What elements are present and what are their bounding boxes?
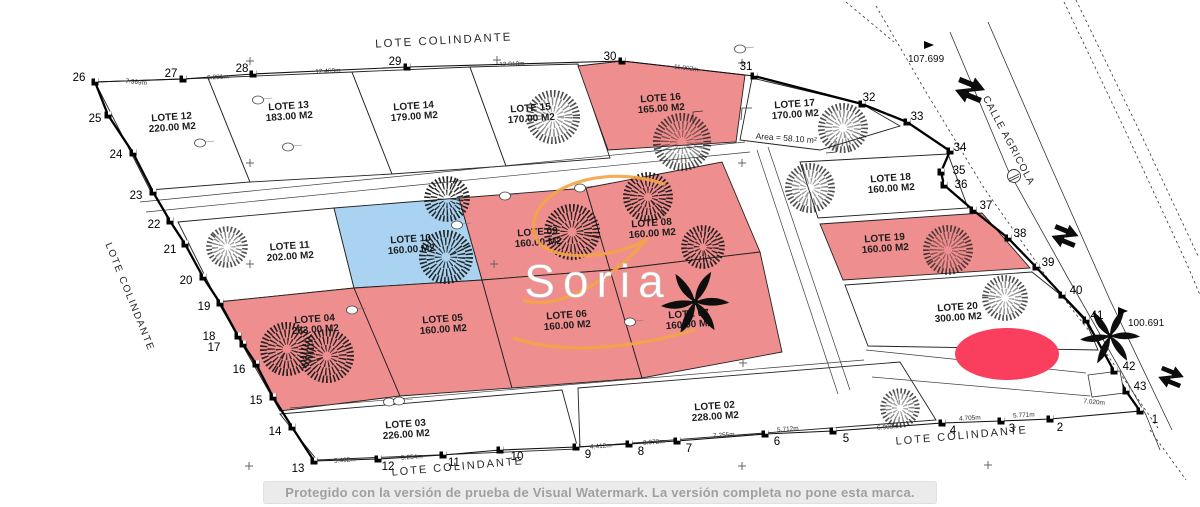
boundary-point-number: 2	[1057, 422, 1063, 434]
boundary-marker-inner	[443, 452, 446, 455]
boundary-marker-inner	[378, 456, 381, 459]
boundary-point-number: 31	[740, 61, 753, 73]
survey-circle-icon	[452, 221, 463, 229]
boundary-marker-inner	[1140, 408, 1143, 411]
boundary-point-22: 22	[148, 218, 174, 232]
boundary-point-number: 16	[233, 364, 246, 376]
boundary-point-40: 40	[1059, 285, 1083, 299]
boundary-point-13: 13	[292, 458, 318, 476]
boundary-point-number: 17	[208, 342, 221, 354]
lot-label: LOTE 06160.00 M2	[543, 308, 592, 333]
boundary-marker-inner	[153, 189, 156, 192]
boundary-point-23: 23	[130, 189, 157, 203]
boundary-marker-inner	[203, 274, 206, 277]
boundary-point-number: 30	[604, 51, 617, 63]
boundary-marker-inner	[407, 64, 410, 67]
road-direction-arrows-icon	[1156, 362, 1187, 392]
grid-cross-icon	[738, 159, 746, 167]
survey-circle-icon	[384, 398, 395, 406]
boundary-point-number: 9	[585, 449, 591, 461]
survey-circle-icon	[625, 318, 636, 326]
benchmark-flag-icon	[924, 41, 934, 54]
palm-center	[692, 299, 698, 305]
logo-pink-dot	[955, 328, 1059, 380]
street-line	[1064, 2, 1200, 295]
edge-length-label: 12.469m	[315, 67, 341, 75]
boundary-marker-inner	[944, 182, 947, 185]
boundary-point-number: 38	[1014, 228, 1027, 240]
boundary-point-number: 22	[148, 219, 161, 231]
lot-lote-11: LOTE 11202.00 M2	[178, 208, 354, 302]
survey-circle-icon	[735, 45, 746, 53]
boundary-marker-inner	[238, 333, 241, 336]
boundary-point-number: 7	[686, 443, 692, 455]
edge-length-label: 5.254m	[401, 453, 423, 461]
survey-tick	[405, 399, 414, 400]
lot-label: LOTE 05160.00 M2	[419, 312, 468, 337]
survey-circle-icon	[195, 139, 206, 147]
street-line	[846, 2, 894, 42]
boundary-point-number: 41	[1091, 310, 1104, 322]
survey-circle-icon	[500, 192, 511, 200]
boundary-marker-inner	[941, 169, 944, 172]
lot-label: LOTE 17170.00 M2	[771, 97, 820, 122]
adjacent-lot-label-1: LOTE COLINDANTE	[103, 241, 157, 353]
palm-center	[1107, 333, 1113, 339]
boundary-marker-inner	[1008, 235, 1011, 238]
plan-canvas: LOTE 12220.00 M2LOTE 13183.00 M2LOTE 141…	[0, 0, 1200, 507]
boundary-marker-inner	[765, 431, 768, 434]
boundary-marker-inner	[314, 458, 317, 461]
boundary-point-25: 25	[89, 112, 112, 126]
boundary-point-number: 13	[292, 463, 305, 475]
boundary-point-number: 36	[955, 179, 968, 191]
grid-cross-icon	[738, 462, 746, 470]
lot-label: LOTE 02228.00 M2	[691, 399, 740, 424]
boundary-marker-inner	[500, 447, 503, 450]
lot-label: LOTE 11202.00 M2	[266, 239, 315, 264]
edge-length-label: 5.771m	[1013, 411, 1035, 419]
boundary-marker-inner	[1050, 416, 1053, 419]
street-line	[1076, 0, 1199, 258]
boundary-point-18: 18	[203, 331, 242, 343]
boundary-marker-inner	[170, 218, 173, 221]
lot-label: LOTE 19160.00 M2	[861, 231, 910, 256]
adjacent-lot-label-0: LOTE COLINDANTE	[375, 31, 513, 50]
edge-length-label: 7.255m	[713, 431, 735, 439]
survey-circle-icon	[347, 306, 358, 314]
survey-tick	[746, 47, 755, 48]
site-plan: LOTE 12220.00 M2LOTE 13183.00 M2LOTE 141…	[0, 0, 1200, 507]
boundary-point-14: 14	[269, 424, 296, 439]
boundary-point-41: 41	[1083, 310, 1104, 324]
gate-rectangle	[1088, 371, 1124, 397]
benchmark-1: 100.691	[1118, 307, 1165, 329]
boundary-marker-inner	[185, 241, 188, 244]
boundary-point-number: 34	[954, 142, 967, 154]
boundary-marker-inner	[576, 444, 579, 447]
lot-label: LOTE 03226.00 M2	[382, 417, 431, 442]
edge-length-label: 4.412m	[590, 442, 612, 450]
edge-length-label: 12.910m	[499, 61, 525, 69]
lot-label: LOTE 12220.00 M2	[148, 110, 197, 135]
survey-circle-icon	[394, 397, 405, 405]
boundary-point-number: 23	[130, 190, 143, 202]
boundary-marker-inner	[833, 428, 836, 431]
edge-length-label: 6.909m	[877, 423, 899, 431]
boundary-marker-inner	[1062, 292, 1065, 295]
boundary-point-number: 43	[1134, 381, 1147, 393]
boundary-point-number: 20	[180, 275, 193, 287]
boundary-point-43: 43	[1123, 381, 1147, 395]
boundary-marker-inner	[1036, 264, 1039, 267]
boundary-point-number: 29	[389, 56, 402, 68]
boundary-marker-inner	[1126, 388, 1129, 391]
boundary-point-number: 40	[1070, 285, 1083, 297]
boundary-point-number: 32	[863, 92, 876, 104]
boundary-point-number: 21	[164, 244, 177, 256]
boundary-point-20: 20	[180, 274, 207, 288]
boundary-marker-inner	[622, 58, 625, 61]
watermark-protect-bar: Protegido con la versión de prueba de Vi…	[263, 481, 937, 504]
edge-length-label: 4.705m	[959, 414, 981, 422]
boundary-point-34: 34	[947, 142, 967, 155]
boundary-point-24: 24	[110, 149, 137, 161]
watermark-protect-text: Protegido con la versión de prueba de Vi…	[285, 485, 914, 500]
boundary-point-number: 42	[1123, 361, 1136, 373]
boundary-marker-inner	[1001, 418, 1004, 421]
boundary-marker-inner	[108, 112, 111, 115]
boundary-point-19: 19	[198, 300, 224, 314]
boundary-point-1: 1	[1137, 408, 1159, 427]
grid-cross-icon	[984, 461, 992, 469]
survey-circle-icon	[253, 96, 264, 104]
boundary-point-29: 29	[389, 56, 411, 71]
boundary-point-number: 28	[236, 63, 249, 75]
survey-point-icon	[735, 45, 755, 53]
boundary-point-number: 15	[250, 395, 263, 407]
boundary-point-15: 15	[250, 394, 277, 408]
boundary-marker-inner	[1114, 368, 1117, 371]
grid-cross-icon	[245, 462, 253, 470]
boundary-point-number: 18	[203, 331, 216, 343]
boundary-point-number: 19	[198, 301, 211, 313]
boundary-point-number: 8	[638, 446, 644, 458]
lot-label: LOTE 13183.00 M2	[265, 99, 314, 124]
boundary-point-37: 37	[970, 200, 993, 214]
boundary-marker-inner	[1086, 317, 1089, 320]
survey-circle-icon	[283, 143, 294, 151]
boundary-marker-inner	[754, 73, 757, 76]
benchmark-elevation: 100.691	[1128, 318, 1165, 329]
boundary-point-number: 5	[843, 433, 849, 445]
boundary-marker-inner	[942, 420, 945, 423]
boundary-point-39: 39	[1033, 257, 1055, 271]
boundary-point-number: 14	[269, 426, 282, 438]
boundary-point-number: 35	[953, 165, 966, 177]
boundary-marker-inner	[973, 207, 976, 210]
survey-circle-icon	[575, 184, 586, 192]
benchmark-0: 107.699	[908, 41, 945, 65]
boundary-marker-inner	[292, 424, 295, 427]
boundary-point-30: 30	[604, 51, 626, 65]
lot-label: LOTE 18160.00 M2	[867, 171, 916, 196]
boundary-point-38: 38	[1005, 228, 1027, 242]
lot-label: LOTE 14179.00 M2	[390, 99, 439, 124]
boundary-point-number: 24	[110, 149, 123, 161]
boundary-point-number: 6	[774, 436, 780, 448]
boundary-marker-inner	[183, 76, 186, 79]
benchmark-elevation: 107.699	[908, 54, 945, 65]
edge-length-label: 6.281m	[207, 73, 229, 81]
lot-label: LOTE 10160.00 M2	[387, 232, 436, 257]
boundary-marker-inner	[243, 341, 246, 344]
boundary-marker-inner	[220, 300, 223, 303]
lot-lote-16: LOTE 16165.00 M2	[578, 61, 745, 150]
lot-label: LOTE 20300.00 M2	[934, 300, 983, 325]
boundary-marker-inner	[95, 79, 98, 82]
adjacent-lot-label-3: LOTE COLINDANTE	[895, 424, 1028, 448]
boundary-point-number: 26	[73, 72, 86, 84]
logo-brand-text: Soria	[524, 255, 671, 307]
boundary-point-number: 33	[911, 111, 924, 123]
boundary-point-number: 37	[980, 200, 993, 212]
boundary-marker-inner	[677, 438, 680, 441]
boundary-point-number: 27	[165, 68, 178, 80]
boundary-point-number: 1	[1152, 414, 1158, 426]
boundary-marker-inner	[256, 361, 259, 364]
boundary-point-42: 42	[1111, 361, 1136, 375]
boundary-marker-inner	[629, 441, 632, 444]
boundary-point-number: 25	[89, 113, 102, 125]
boundary-point-33: 33	[904, 111, 924, 126]
boundary-point-number: 39	[1042, 257, 1055, 269]
boundary-marker-inner	[253, 71, 256, 74]
edge-length-label: 5.402m	[334, 456, 356, 464]
boundary-marker-inner	[273, 394, 276, 397]
edge-length-label: 7.020m	[1083, 398, 1105, 407]
boundary-point-21: 21	[164, 241, 189, 257]
edge-length-label: 3.972m	[643, 438, 665, 446]
lot-label: LOTE 16165.00 M2	[637, 91, 686, 116]
boundary-point-26: 26	[73, 72, 99, 86]
boundary-marker-inner	[133, 150, 136, 153]
